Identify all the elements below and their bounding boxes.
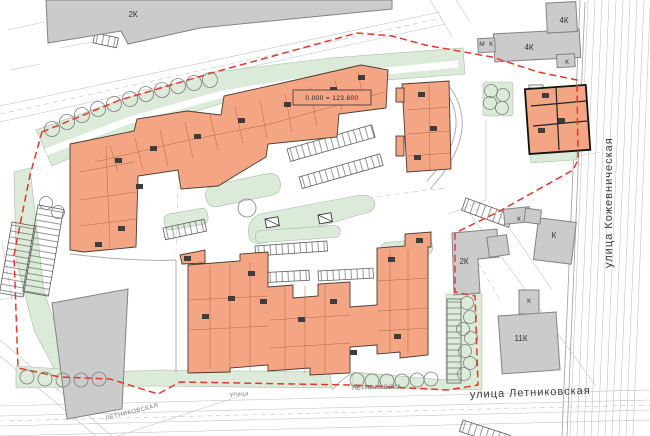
label-4k-wing: 4К [559,16,568,25]
site-plan-svg: 0.000 = 123.600 2К 4К 4К М К К К К 2К К … [0,0,650,436]
datum-label-box: 0.000 = 123.600 [293,90,371,105]
datum-label: 0.000 = 123.600 [305,95,358,102]
label-corner-k: К [565,59,569,66]
label-east-top-k: К [517,216,521,223]
building-11k [498,312,560,374]
street-label-letnikovskaya-tiny: ЛЕТНИКОВСКА [352,384,402,392]
site-plan: 0.000 = 123.600 2К 4К 4К М К К К К 2К К … [0,0,650,436]
label-east-small-k: К [527,298,531,305]
parking-strip [299,154,383,189]
street-label-ulitsa-small: улица [230,391,249,398]
proposed-south-complex [188,232,431,375]
label-annex-k: К [489,41,493,48]
parking-strip [459,420,510,436]
label-east-2k: 2К [459,257,468,266]
label-east-big-k: К [552,231,557,240]
street-label-letnikovskaya: улица Летниковская [470,385,591,401]
tree-single-center [238,199,256,217]
label-4k-main: 4К [524,43,533,52]
proposed-curved-building [402,81,451,172]
label-annex-m: М [479,41,484,48]
parking-strip [318,268,373,281]
label-2k-northwest: 2К [128,10,137,19]
building-gray-southwest [52,289,128,419]
street-label-kozhevnicheskaya: улица Кожевническая [603,137,615,268]
proposed-small-wing [180,250,205,264]
label-11k: 11К [515,334,528,343]
